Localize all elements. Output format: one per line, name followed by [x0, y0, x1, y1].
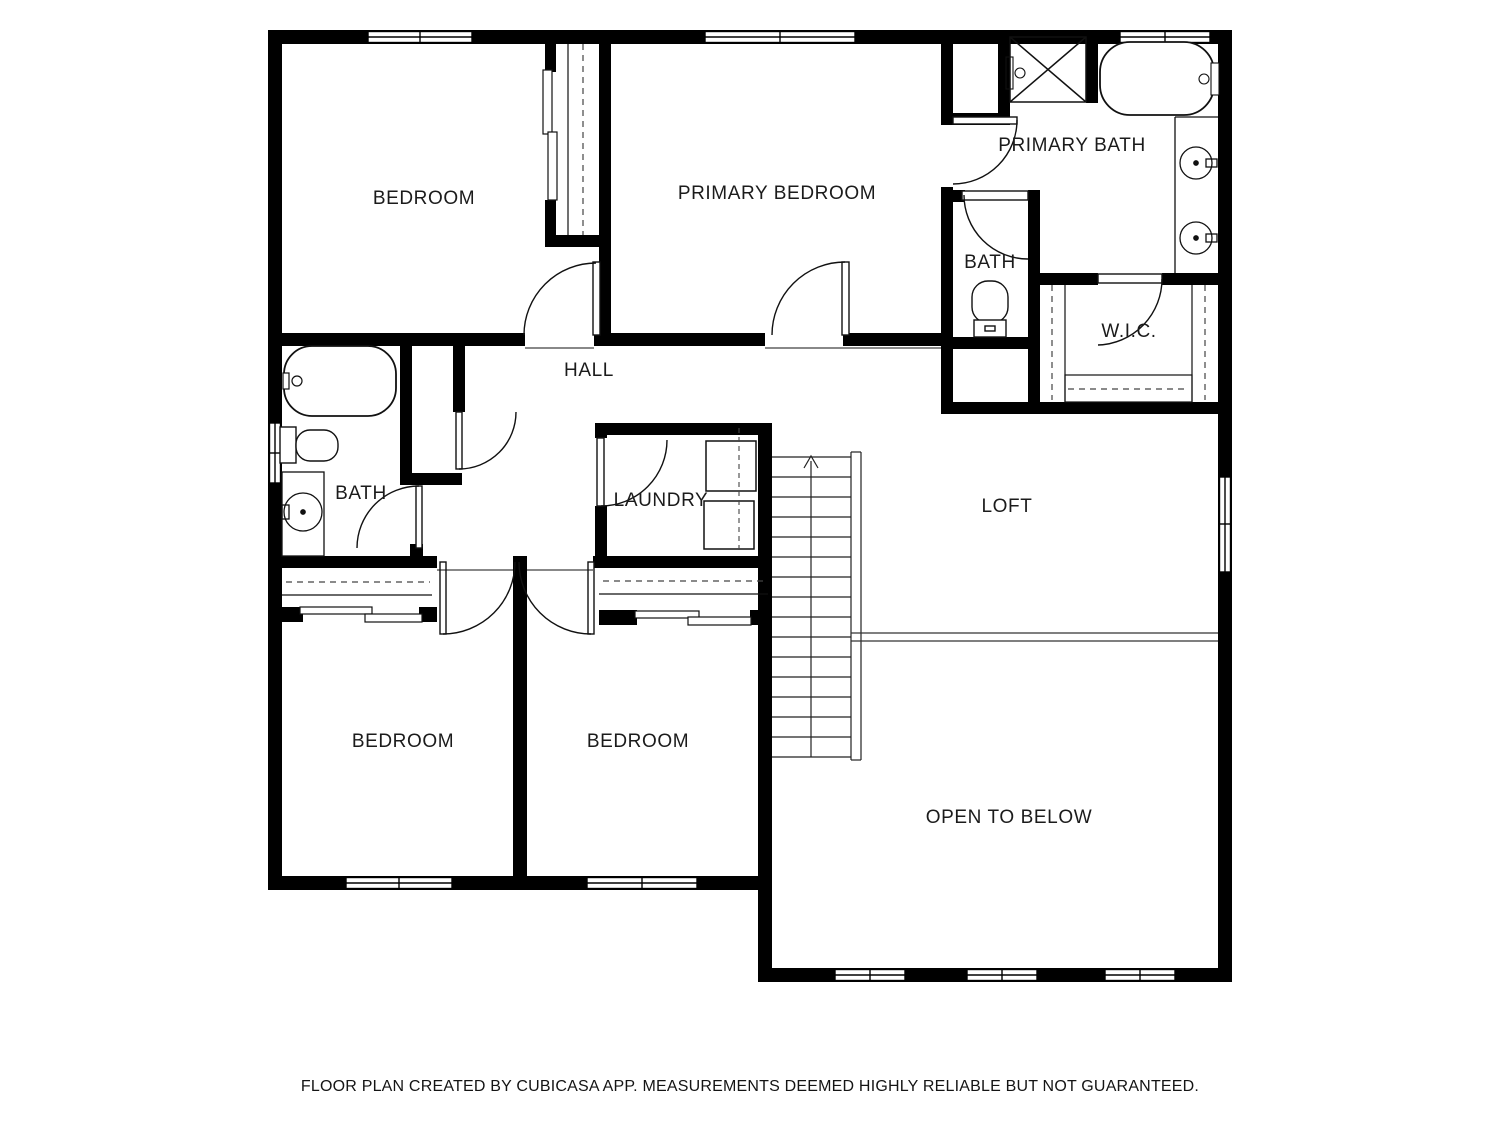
bathtub-icon [1100, 42, 1219, 115]
door-swing-icon [437, 562, 515, 634]
sink-icon [1180, 222, 1217, 254]
closet-bottom-left-bedroom [282, 582, 432, 622]
room-label-hall: HALL [564, 360, 614, 382]
dryer-icon [704, 501, 754, 549]
window-icon [587, 878, 697, 889]
stairs-railing [851, 452, 861, 760]
room-label-walk-in-closet: W.I.C. [1101, 321, 1156, 343]
window-icon [705, 32, 855, 43]
washer-icon [706, 441, 756, 491]
room-label-laundry: LAUNDRY [614, 490, 709, 512]
room-label-primary-bath: PRIMARY BATH [998, 135, 1146, 157]
toilet-icon [972, 281, 1008, 337]
bathtub-icon [283, 346, 396, 416]
room-label-toilet-room: BATH [964, 252, 1016, 274]
sink-icon [282, 472, 324, 556]
vanity-double-sink [1175, 117, 1218, 273]
open-to-below-boundary [851, 633, 1218, 641]
room-label-open-to-below: OPEN TO BELOW [926, 807, 1093, 829]
window-icon [270, 423, 281, 483]
laundry-appliances [704, 428, 756, 553]
closet-rails [1052, 285, 1205, 402]
window-icon [835, 970, 905, 981]
door-swing-icon [456, 412, 516, 469]
toilet-icon [280, 427, 338, 463]
window-icon [1105, 970, 1175, 981]
window-icon [1120, 32, 1210, 43]
windows [270, 32, 1231, 981]
room-label-hall-bath: BATH [335, 483, 387, 505]
floor-plan-drawing [0, 0, 1500, 1125]
shower-icon [1006, 37, 1086, 102]
room-label-bedroom-bottom-left: BEDROOM [352, 731, 454, 753]
sink-icon [1180, 147, 1217, 179]
window-icon [346, 878, 452, 889]
window-icon [1220, 477, 1231, 572]
stairs-icon [772, 456, 851, 757]
exterior-walls [268, 30, 1232, 982]
window-icon [368, 32, 472, 43]
window-icon [967, 970, 1037, 981]
door-swing-icon [962, 191, 1028, 259]
disclaimer-text: FLOOR PLAN CREATED BY CUBICASA APP. MEAS… [301, 1078, 1199, 1096]
room-label-primary-bedroom: PRIMARY BEDROOM [678, 183, 876, 205]
room-label-bedroom-bottom-middle: BEDROOM [587, 731, 689, 753]
room-label-bedroom-top-left: BEDROOM [373, 188, 475, 210]
door-swing-icon [519, 562, 594, 634]
room-label-loft: LOFT [982, 496, 1033, 518]
door-swing-icon [524, 262, 600, 348]
floor-plan: BEDROOM PRIMARY BEDROOM PRIMARY BATH BAT… [0, 0, 1500, 1125]
